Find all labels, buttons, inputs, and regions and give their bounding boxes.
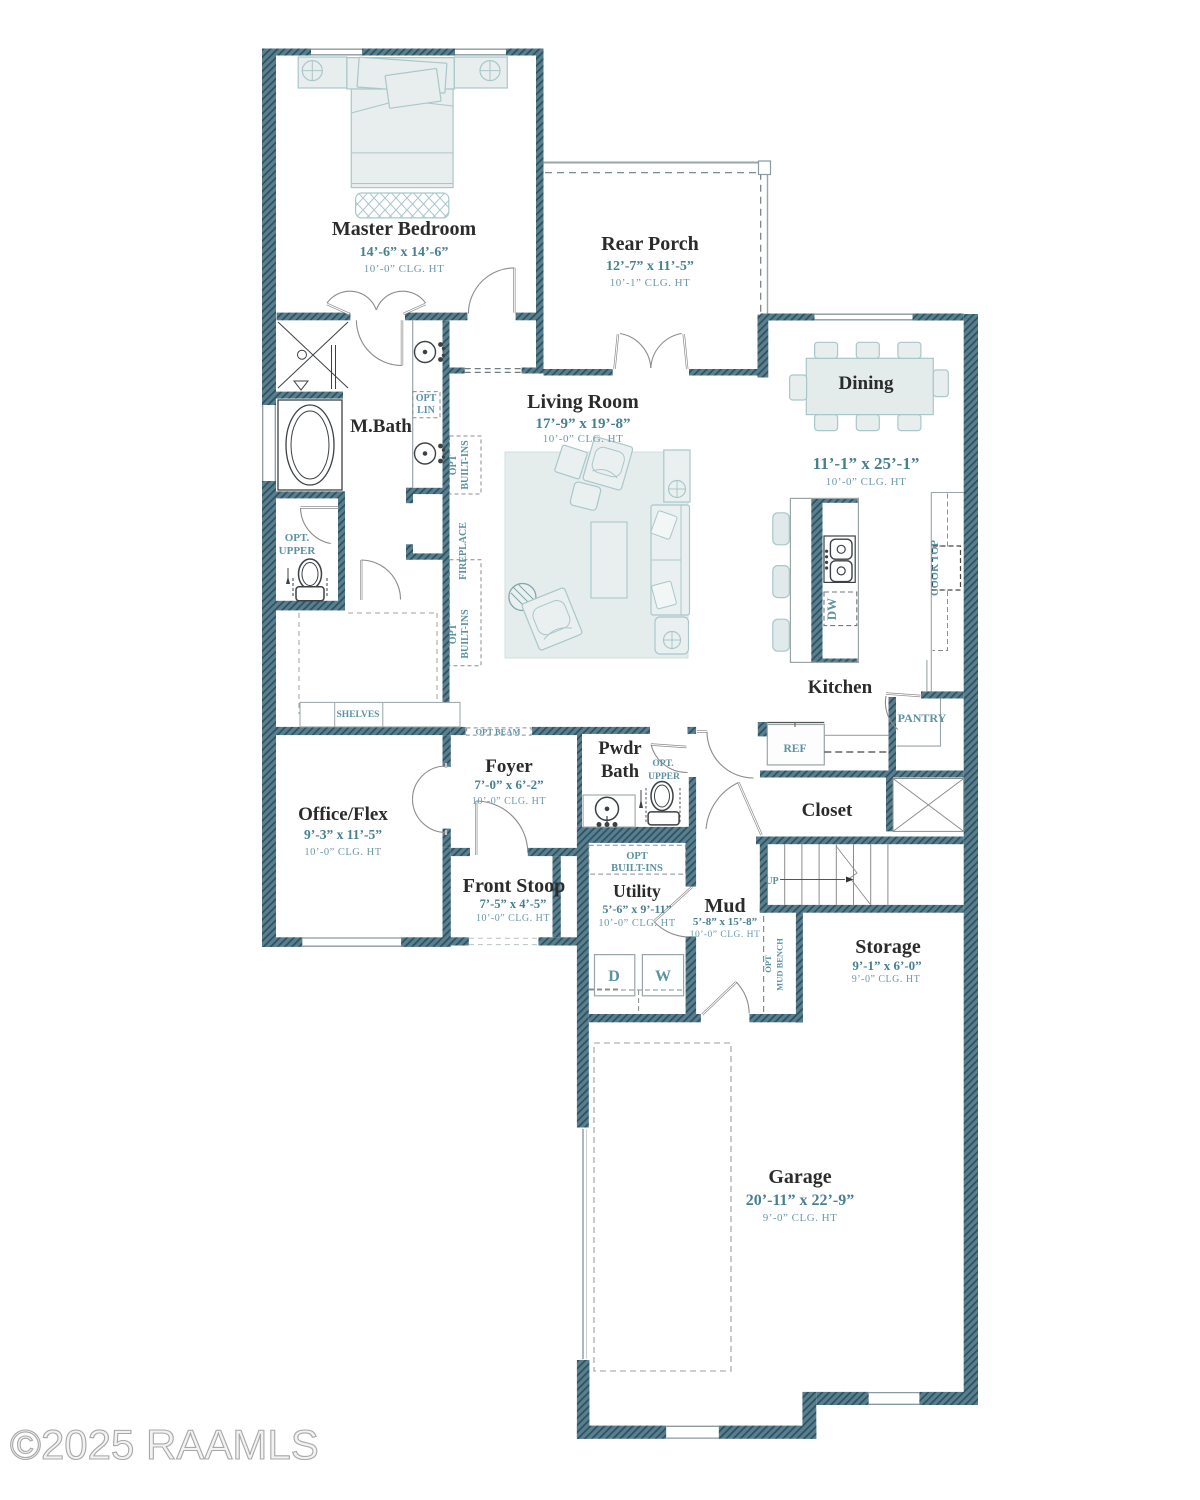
svg-text:M.Bath: M.Bath (350, 416, 412, 437)
svg-text:9’-3” x 11’-5”: 9’-3” x 11’-5” (304, 827, 382, 842)
svg-text:Pwdr: Pwdr (598, 739, 641, 759)
svg-text:FIREPLACE: FIREPLACE (458, 522, 469, 580)
svg-text:W: W (655, 968, 671, 985)
svg-text:12’-7” x 11’-5”: 12’-7” x 11’-5” (606, 259, 694, 274)
svg-text:Mud: Mud (704, 895, 745, 917)
svg-text:COOK TOP: COOK TOP (930, 539, 941, 596)
svg-text:14’-6” x 14’-6”: 14’-6” x 14’-6” (360, 245, 449, 260)
svg-text:BUILT-INS: BUILT-INS (611, 863, 663, 874)
svg-text:9’-1” x 6’-0”: 9’-1” x 6’-0” (852, 958, 921, 973)
svg-text:D: D (608, 968, 620, 985)
svg-text:Front Stoop: Front Stoop (463, 875, 565, 897)
svg-text:Closet: Closet (802, 800, 853, 821)
svg-text:BUILT-INS: BUILT-INS (460, 440, 471, 490)
svg-text:11’-1” x 25’-1”: 11’-1” x 25’-1” (813, 454, 920, 473)
svg-text:OPT: OPT (763, 955, 773, 973)
svg-text:7’-5” x 4’-5”: 7’-5” x 4’-5” (480, 897, 547, 911)
svg-text:10’-0” CLG. HT: 10’-0” CLG. HT (472, 796, 546, 807)
svg-text:17’-9” x 19’-8”: 17’-9” x 19’-8” (536, 416, 631, 432)
svg-text:Bath: Bath (601, 762, 640, 782)
svg-text:PANTRY: PANTRY (898, 711, 947, 725)
svg-text:Utility: Utility (613, 881, 661, 901)
svg-text:10’-0” CLG. HT: 10’-0” CLG. HT (598, 918, 675, 929)
svg-text:10’-0” CLG. HT: 10’-0” CLG. HT (476, 913, 550, 924)
svg-text:OPT: OPT (626, 851, 648, 862)
svg-text:REF: REF (784, 743, 807, 755)
svg-text:SHELVES: SHELVES (337, 710, 380, 720)
svg-text:9’-0” CLG. HT: 9’-0” CLG. HT (852, 974, 920, 985)
svg-text:UP: UP (765, 876, 778, 887)
svg-text:Storage: Storage (855, 936, 921, 958)
svg-text:DW: DW (824, 598, 839, 620)
svg-text:UPPER: UPPER (279, 545, 317, 557)
svg-text:10’-0” CLG. HT: 10’-0” CLG. HT (364, 263, 445, 275)
svg-text:5’-6” x 9’-11”: 5’-6” x 9’-11” (602, 902, 671, 916)
svg-text:9’-0” CLG. HT: 9’-0” CLG. HT (763, 1212, 838, 1224)
svg-text:BUILT-INS: BUILT-INS (460, 609, 471, 659)
svg-text:OPT: OPT (416, 393, 437, 404)
svg-text:20’-11” x 22’-9”: 20’-11” x 22’-9” (746, 1192, 854, 1209)
svg-text:Office/Flex: Office/Flex (298, 804, 388, 825)
svg-text:UPPER: UPPER (648, 772, 680, 782)
svg-text:©2025 RAAMLS: ©2025 RAAMLS (10, 1421, 319, 1468)
svg-text:Rear Porch: Rear Porch (601, 233, 699, 255)
svg-text:Garage: Garage (768, 1166, 831, 1188)
svg-text:MUD BENCH: MUD BENCH (775, 938, 785, 991)
svg-text:10’-0” CLG. HT: 10’-0” CLG. HT (690, 930, 761, 940)
svg-text:OPT BEAM: OPT BEAM (476, 727, 521, 737)
svg-text:Dining: Dining (839, 373, 894, 394)
svg-text:5’-8” x 15’-8”: 5’-8” x 15’-8” (693, 916, 757, 928)
svg-text:Living Room: Living Room (527, 391, 639, 413)
svg-text:Master Bedroom: Master Bedroom (332, 218, 477, 240)
svg-text:10’-0” CLG. HT: 10’-0” CLG. HT (826, 476, 907, 488)
svg-text:Foyer: Foyer (485, 756, 533, 777)
svg-text:10’-0” CLG. HT: 10’-0” CLG. HT (543, 433, 624, 445)
svg-text:Kitchen: Kitchen (808, 677, 873, 698)
svg-text:OPT: OPT (448, 623, 459, 644)
svg-text:OPT.: OPT. (652, 759, 673, 769)
svg-text:10’-1” CLG. HT: 10’-1” CLG. HT (610, 277, 691, 289)
svg-text:10’-0” CLG. HT: 10’-0” CLG. HT (304, 847, 381, 858)
svg-text:7’-0” x 6’-2”: 7’-0” x 6’-2” (474, 777, 543, 792)
svg-text:LIN: LIN (417, 405, 436, 416)
svg-text:OPT.: OPT. (285, 532, 310, 544)
svg-text:OPT: OPT (448, 454, 459, 475)
